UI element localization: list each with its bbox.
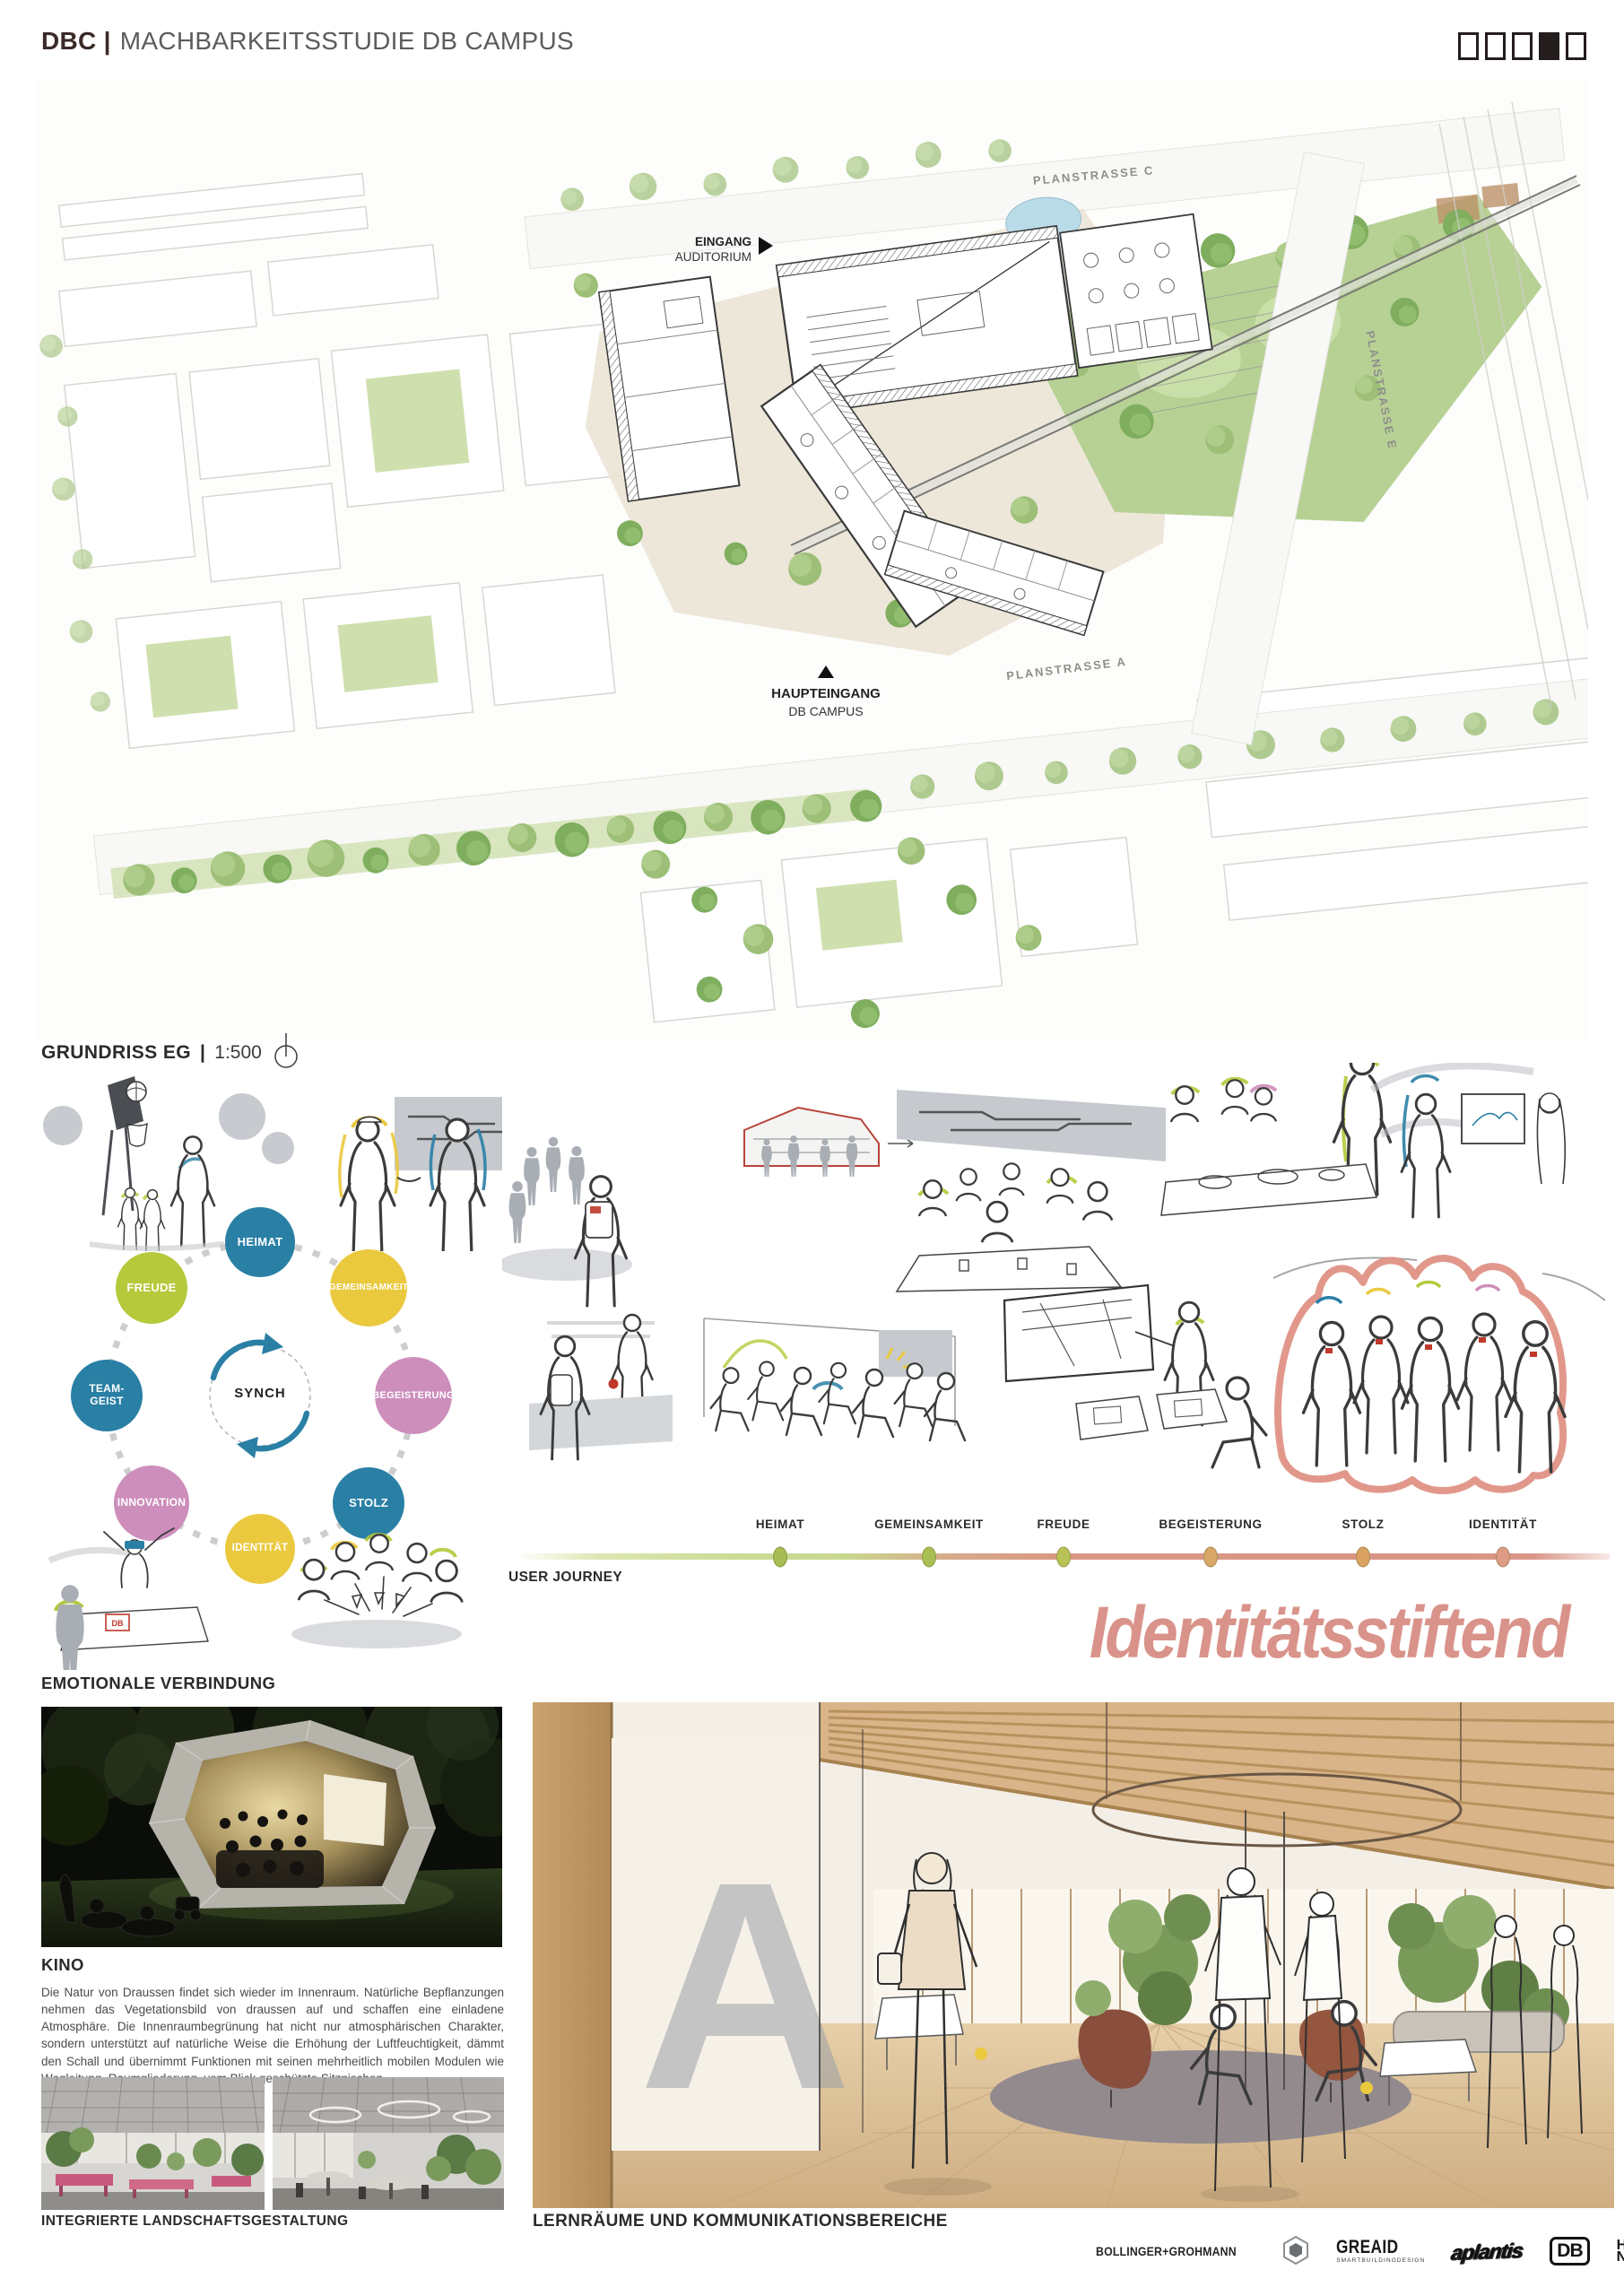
vignette-identity-group <box>1273 1258 1605 1492</box>
vignette-reception <box>529 1315 673 1459</box>
db-backpack-mark: DB <box>112 1619 124 1628</box>
journey-station-begeisterung: BEGEISTERUNG <box>1159 1518 1262 1531</box>
brand-logo: DBC <box>41 27 97 55</box>
vignette-backpack-person <box>502 1137 632 1306</box>
plan-caption-title: GRUNDRISS EG <box>41 1042 191 1064</box>
journey-dot <box>922 1547 936 1568</box>
toast-sketch <box>291 1535 463 1648</box>
journey-station-stolz: STOLZ <box>1342 1518 1384 1531</box>
header-divider: | <box>104 27 111 55</box>
journey-dot <box>773 1547 787 1568</box>
plan-caption: GRUNDRISS EG | 1:500 <box>41 1042 301 1069</box>
sketch-vr-toast: DB <box>36 1509 502 1670</box>
node-gemeinsamkeit: GEMEINSAMKEIT <box>330 1249 407 1326</box>
section-caption-emotionale: EMOTIONALE VERBINDUNG <box>41 1674 275 1693</box>
vignette-pavilion <box>744 1108 913 1177</box>
vignette-frame <box>1372 1065 1565 1217</box>
logo-henn: HE NN <box>1617 2239 1624 2263</box>
synch-center-label: SYNCH <box>220 1386 300 1401</box>
photo-landscape-office-1 <box>41 2077 265 2210</box>
journey-dot <box>1056 1547 1071 1568</box>
caption-lernraeume: LERNRÄUME UND KOMMUNIKATIONSBEREICHE <box>533 2212 948 2231</box>
node-teamgeist: TEAM-GEIST <box>71 1360 143 1431</box>
caption-landscape: INTEGRIERTE LANDSCHAFTSGESTALTUNG <box>41 2213 348 2230</box>
logo-aplantis: aplantis <box>1451 2238 1524 2265</box>
site-plan: EINGANG AUDITORIUM HAUPTEINGANG DB CAMPU… <box>36 79 1588 1040</box>
logo-greaid-text: GREAID <box>1336 2238 1409 2257</box>
logo-greaid-subtext: SMARTBUILDINGDESIGN <box>1336 2258 1425 2265</box>
node-freude: FREUDE <box>116 1252 187 1324</box>
plan-caption-divider: | <box>200 1042 205 1064</box>
page-indicator <box>1458 32 1586 60</box>
journey-station-identitaet: IDENTITÄT <box>1469 1518 1537 1531</box>
vignette-control-room <box>1004 1285 1266 1467</box>
journey-headline: Identitätsstiftend <box>1090 1591 1568 1675</box>
journey-label: USER JOURNEY <box>508 1570 622 1586</box>
label-haupteingang: HAUPTEINGANG <box>771 686 881 701</box>
kino-title: KINO <box>41 1955 84 1975</box>
journey-station-gemeinsamkeit: GEMEINSAMKEIT <box>874 1518 984 1531</box>
journey-station-heimat: HEIMAT <box>756 1518 804 1531</box>
photo-landscape-office-2 <box>273 2077 504 2210</box>
page-header: DBC|MACHBARKEITSSTUDIE DB CAMPUS <box>41 27 574 56</box>
sketch-vignettes <box>502 1063 1623 1511</box>
page-indicator-square-active <box>1539 32 1559 60</box>
page-indicator-square <box>1512 32 1533 60</box>
vignette-cooking <box>1161 1063 1391 1215</box>
label-db-campus: DB CAMPUS <box>788 704 863 718</box>
label-eingang: EINGANG <box>695 235 751 248</box>
footer-logos: BOLLINGER+GROHMANN GREAID SMARTBUILDINGD… <box>1096 2235 1624 2267</box>
hexagon-logo-icon <box>1282 2235 1309 2267</box>
label-auditorium: AUDITORIUM <box>675 250 751 264</box>
page-title: MACHBARKEITSSTUDIE DB CAMPUS <box>120 27 574 55</box>
page-indicator-square <box>1566 32 1586 60</box>
journey-dot <box>1203 1547 1218 1568</box>
journey-dot <box>1356 1547 1370 1568</box>
interior-rendering: A <box>533 1702 1614 2208</box>
kino-body-text: Die Natur von Draussen findet sich wiede… <box>41 1984 504 2087</box>
node-heimat: HEIMAT <box>225 1207 295 1277</box>
wood-column <box>533 1702 612 2208</box>
kino-photo <box>41 1707 502 1947</box>
logo-bollinger-grohmann: BOLLINGER+GROHMANN <box>1096 2244 1237 2258</box>
plan-caption-scale: 1:500 <box>214 1042 262 1064</box>
journey-station-freude: FREUDE <box>1037 1518 1090 1531</box>
logo-henn-line2: NN <box>1617 2251 1624 2263</box>
page-indicator-square <box>1458 32 1479 60</box>
journey-dot <box>1496 1547 1510 1568</box>
page-indicator-square <box>1485 32 1506 60</box>
db-logo: DB <box>1550 2237 1589 2265</box>
vignette-audience <box>704 1318 965 1440</box>
node-begeisterung: BEGEISTERUNG <box>375 1357 452 1434</box>
logo-greaid: GREAID SMARTBUILDINGDESIGN <box>1336 2238 1425 2265</box>
north-arrow-icon <box>271 1033 301 1069</box>
poster: DBC|MACHBARKEITSSTUDIE DB CAMPUS <box>0 0 1624 2296</box>
vignette-table-group <box>897 1090 1166 1291</box>
vr-sketch: DB <box>49 1528 208 1670</box>
